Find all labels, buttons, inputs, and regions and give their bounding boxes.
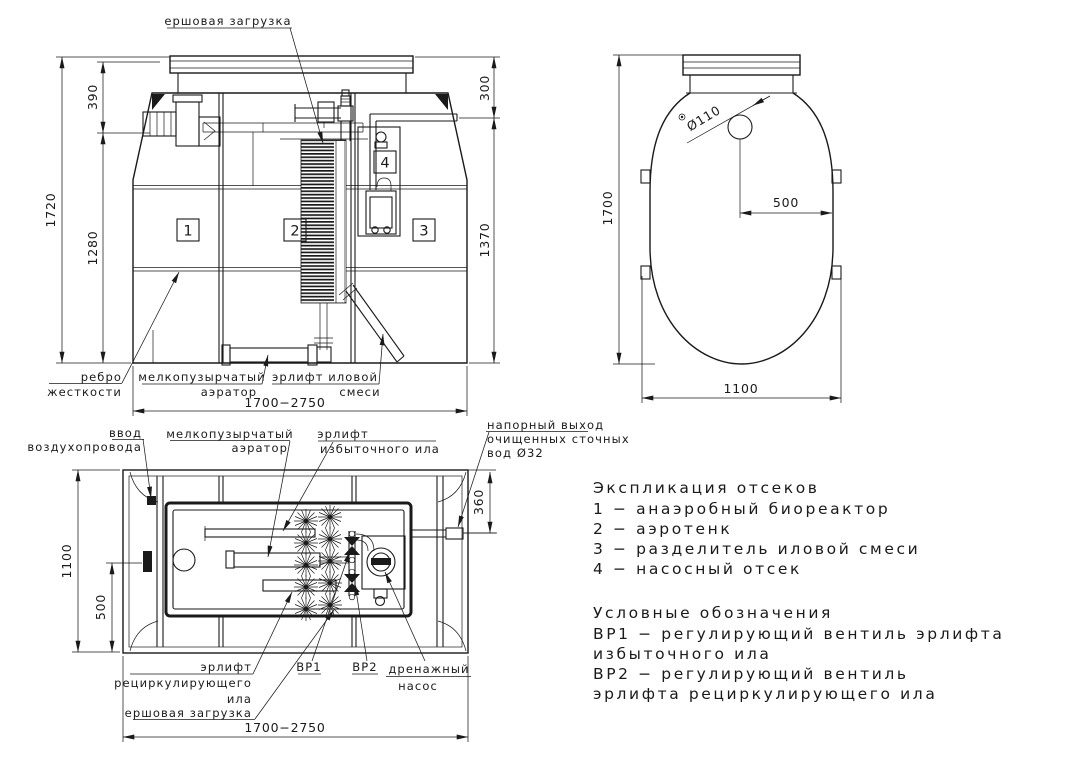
label-vr1: ВР1 <box>296 660 321 674</box>
plan-dimensions: 1100 500 360 1700−2750 <box>59 470 497 742</box>
label-drain-pump-line1: дренажный <box>388 662 469 676</box>
dim-hole-diameter: Ø110 <box>684 102 723 134</box>
dim-plan-outlet-offset: 360 <box>471 489 486 515</box>
legend-symbol-line-1: ВР1 − регулирующий вентиль эрлифта <box>593 625 1004 643</box>
label-recirc-airlift-line2: рециркулирующего <box>114 676 252 690</box>
dim-1280: 1280 <box>85 230 100 265</box>
side-dimensions: Ø110 500 1700 1100 <box>600 55 841 403</box>
legend-compartment-item-2: 2 − аэротенк <box>593 520 732 538</box>
legend-compartment-item-4: 4 − насосный отсек <box>593 560 802 578</box>
label-drain-pump-line2: насос <box>398 679 438 693</box>
side-tank-body <box>641 93 841 364</box>
legend-compartment-item-1: 1 − анаэробный биореактор <box>593 500 890 518</box>
label-recirc-airlift-line1: эрлифт <box>200 660 252 674</box>
dim-hole-offset: 500 <box>773 195 799 210</box>
dim-plan-width: 1100 <box>59 543 74 578</box>
plan-callouts: ввод воздухопровода мелкопузырчатый аэра… <box>27 418 629 720</box>
label-rib-line2: жесткости <box>47 385 122 399</box>
legend: Экспликация отсеков 1 − анаэробный биоре… <box>593 479 1004 703</box>
front-pressure-pipe <box>370 114 457 190</box>
label-outlet-line3: вод Ø32 <box>487 446 544 460</box>
legend-compartments-title: Экспликация отсеков <box>593 479 820 497</box>
compartment-1-number: 1 <box>183 224 192 240</box>
legend-symbols-title: Условные обозначения <box>593 604 833 622</box>
front-lid <box>170 56 413 93</box>
side-view: Ø110 500 1700 1100 <box>600 55 841 403</box>
plan-view: 1100 500 360 1700−2750 ввод воздухопрово… <box>27 418 629 742</box>
front-aerator <box>222 303 333 365</box>
front-brush-media-column <box>301 140 346 303</box>
dim-1720: 1720 <box>43 192 58 227</box>
label-air-inlet-line1: ввод <box>109 426 142 440</box>
label-outlet-line1: напорный выход <box>487 418 604 432</box>
legend-symbol-line-4: эрлифта рециркулирующего ила <box>593 685 937 703</box>
label-brush-media-plan: ершовая загрузка <box>125 706 252 720</box>
label-vr2: ВР2 <box>352 660 377 674</box>
front-view: 1 2 3 4 1720 390 1280 300 1370 <box>43 14 500 416</box>
compartment-2-number: 2 <box>290 224 299 240</box>
label-excess-airlift-line1: эрлифт <box>317 427 369 441</box>
label-plan-aerator-line2: аэратор <box>232 441 288 455</box>
compartment-4-number: 4 <box>380 156 389 172</box>
drawing-canvas: 1 2 3 4 1720 390 1280 300 1370 <box>0 0 1080 772</box>
label-recirc-airlift-line3: ила <box>227 692 252 706</box>
dim-300: 300 <box>477 75 492 101</box>
dim-plan-inlet-offset: 500 <box>93 594 108 620</box>
label-front-aerator-line2: аэратор <box>201 385 257 399</box>
label-brush-media-top: ершовая загрузка <box>164 14 291 28</box>
plan-tank-outline <box>123 470 468 653</box>
label-sludge-airlift-line1: эрлифт иловой <box>272 370 378 384</box>
front-sludge-airlift-pipe <box>339 283 404 362</box>
dim-1370: 1370 <box>477 222 492 257</box>
dim-390: 390 <box>85 84 100 110</box>
label-front-aerator-line1: мелкопузырчатый <box>138 370 266 384</box>
label-excess-airlift-line2: избыточного ила <box>320 442 440 456</box>
plan-internals <box>205 505 463 621</box>
side-lid <box>683 55 800 93</box>
dim-plan-length: 1700−2750 <box>244 720 325 735</box>
dim-side-height: 1700 <box>600 190 615 225</box>
label-rib-line1: ребро <box>81 370 122 384</box>
label-sludge-airlift-line2: смеси <box>339 385 380 399</box>
label-plan-aerator-line1: мелкопузырчатый <box>166 427 294 441</box>
label-outlet-line2: очищенных сточных <box>487 432 630 446</box>
compartment-3-number: 3 <box>419 224 428 240</box>
front-pump-compartment <box>358 127 400 236</box>
dim-side-width: 1100 <box>723 381 758 396</box>
legend-symbol-line-3: ВР2 − регулирующий вентиль <box>593 665 909 683</box>
label-air-inlet-line2: воздухопровода <box>27 440 142 454</box>
legend-symbol-line-2: избыточного ила <box>593 645 771 663</box>
drawing-sheet: 1 2 3 4 1720 390 1280 300 1370 <box>0 0 1080 772</box>
legend-compartment-item-3: 3 − разделитель иловой смеси <box>593 540 920 558</box>
